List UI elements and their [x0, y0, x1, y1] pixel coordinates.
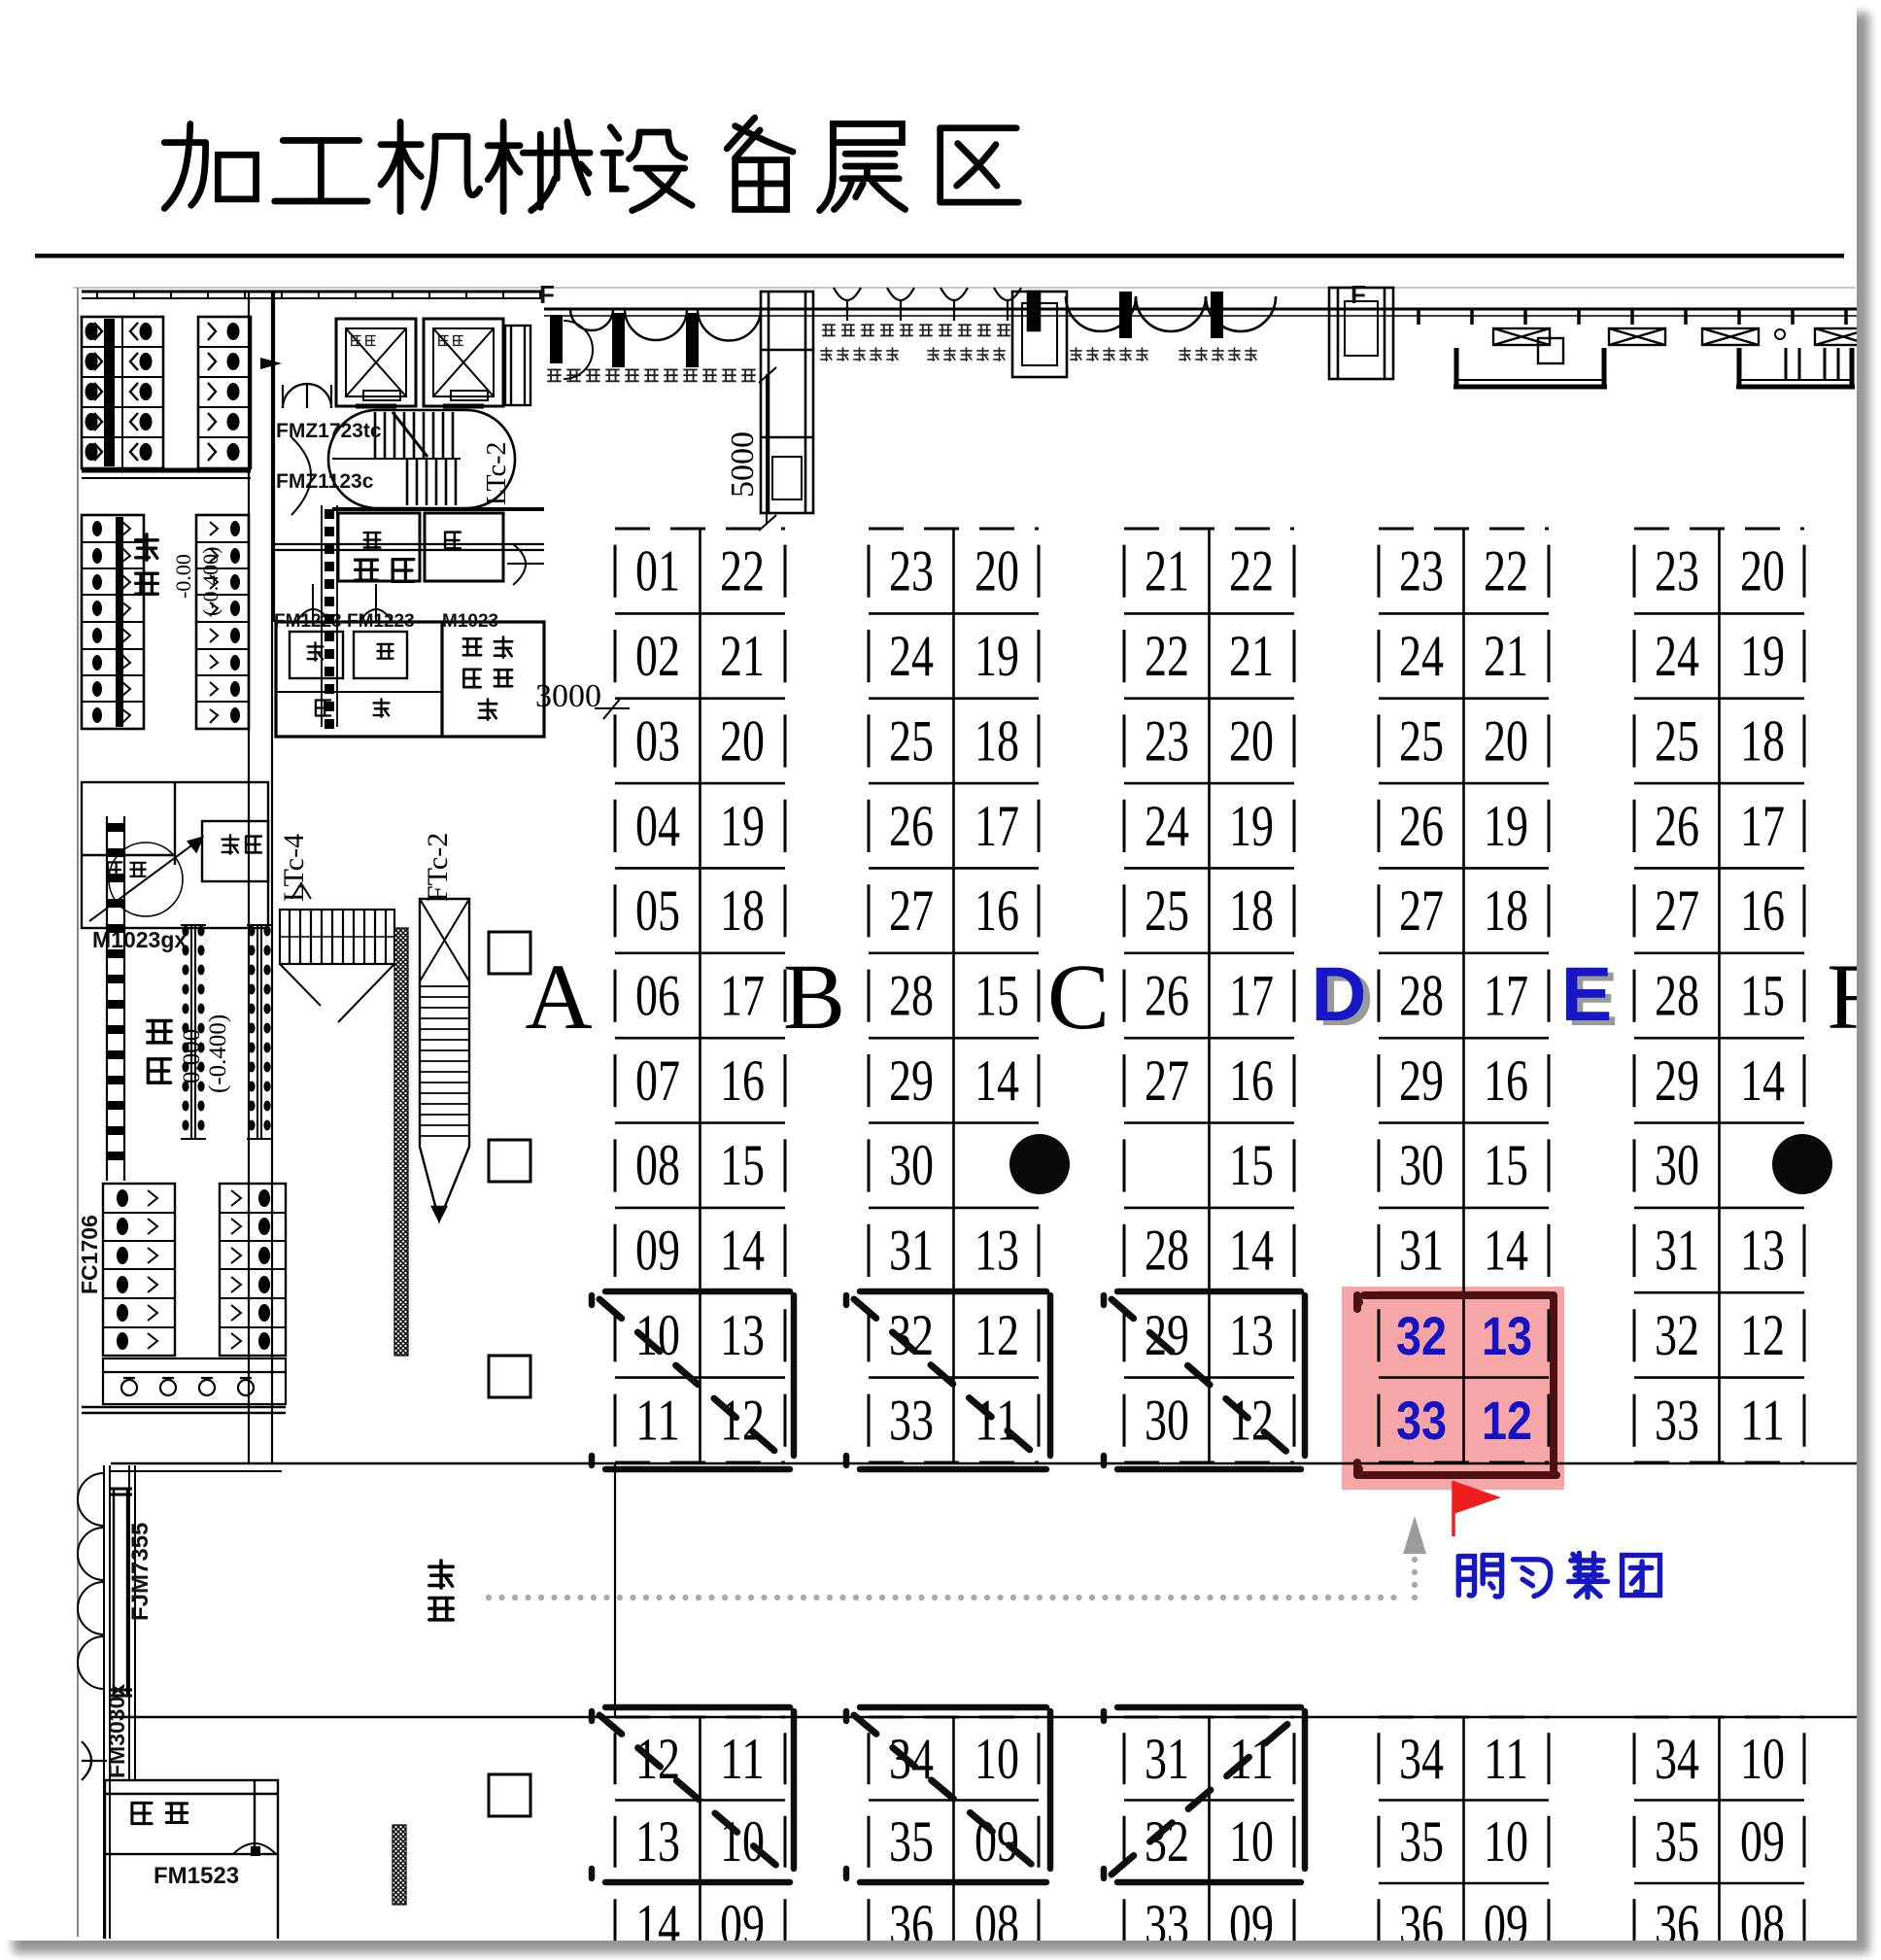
svg-text:27: 27	[889, 878, 934, 943]
svg-text:13: 13	[635, 1809, 680, 1874]
svg-text:26: 26	[1655, 794, 1699, 858]
svg-text:13: 13	[720, 1303, 765, 1367]
svg-text:08: 08	[975, 1893, 1019, 1957]
svg-text:18: 18	[1484, 878, 1528, 943]
svg-text:09: 09	[720, 1893, 765, 1957]
svg-text:21: 21	[1229, 624, 1274, 688]
svg-text:34: 34	[1655, 1727, 1699, 1791]
svg-text:19: 19	[720, 794, 765, 858]
svg-text:16: 16	[1740, 878, 1785, 943]
svg-text:01: 01	[635, 539, 680, 603]
svg-text:LTc-4: LTc-4	[278, 834, 310, 902]
svg-text:07: 07	[635, 1049, 680, 1113]
svg-text:11: 11	[635, 1388, 680, 1452]
svg-text:25: 25	[889, 708, 934, 773]
svg-text:14: 14	[975, 1049, 1019, 1113]
svg-text:26: 26	[1145, 964, 1189, 1028]
svg-text:(-0.400): (-0.400)	[198, 547, 222, 616]
svg-text:FM1523: FM1523	[154, 1863, 239, 1889]
svg-text:30: 30	[1655, 1133, 1699, 1197]
svg-text:20: 20	[1484, 708, 1528, 773]
svg-text:08: 08	[635, 1133, 680, 1197]
svg-text:32: 32	[1655, 1303, 1699, 1367]
svg-text:09: 09	[1229, 1893, 1274, 1957]
svg-text:13: 13	[1229, 1303, 1274, 1367]
svg-text:08: 08	[1740, 1893, 1785, 1957]
svg-text:10: 10	[1484, 1809, 1528, 1874]
svg-text:30: 30	[1145, 1388, 1189, 1452]
svg-text:5000: 5000	[725, 431, 761, 498]
svg-text:10: 10	[1740, 1727, 1785, 1791]
svg-text:FM1223 FM1223: FM1223 FM1223	[274, 611, 415, 632]
svg-text:24: 24	[889, 624, 934, 688]
svg-text:34: 34	[1399, 1727, 1444, 1791]
svg-text:25: 25	[1145, 878, 1189, 943]
svg-text:14: 14	[1484, 1219, 1528, 1283]
svg-text:31: 31	[889, 1219, 934, 1283]
svg-text:28: 28	[1655, 964, 1699, 1028]
svg-text:33: 33	[1655, 1388, 1699, 1452]
svg-text:13: 13	[1740, 1219, 1785, 1283]
svg-text:22: 22	[720, 539, 765, 603]
svg-text:36: 36	[1399, 1893, 1444, 1957]
svg-text:09: 09	[635, 1219, 680, 1283]
svg-text:C: C	[1047, 945, 1110, 1049]
svg-text:FC1706: FC1706	[77, 1215, 102, 1294]
svg-text:LTc-2: LTc-2	[482, 442, 512, 505]
svg-text:15: 15	[975, 964, 1019, 1028]
svg-text:29: 29	[1399, 1049, 1444, 1113]
svg-text:14: 14	[1229, 1219, 1274, 1283]
svg-text:20: 20	[1740, 539, 1785, 603]
svg-text:20: 20	[1229, 708, 1274, 773]
svg-text:11: 11	[975, 1388, 1019, 1452]
svg-text:35: 35	[1655, 1809, 1699, 1874]
svg-text:34: 34	[889, 1727, 934, 1791]
svg-text:15: 15	[1229, 1133, 1274, 1197]
svg-text:11: 11	[1740, 1388, 1785, 1452]
svg-text:11: 11	[1484, 1727, 1528, 1791]
svg-text:27: 27	[1145, 1049, 1189, 1113]
svg-text:20: 20	[720, 708, 765, 773]
svg-text:30: 30	[1399, 1133, 1444, 1197]
svg-text:F: F	[1351, 280, 1366, 309]
svg-text:22: 22	[1145, 624, 1189, 688]
svg-text:26: 26	[889, 794, 934, 858]
svg-text:16: 16	[1484, 1049, 1528, 1113]
svg-text:36: 36	[1655, 1893, 1699, 1957]
svg-text:29: 29	[889, 1049, 934, 1113]
svg-text:E: E	[1561, 950, 1613, 1037]
svg-text:F: F	[1827, 945, 1878, 1049]
svg-text:17: 17	[1740, 794, 1785, 858]
svg-text:10: 10	[1229, 1809, 1274, 1874]
svg-text:21: 21	[1484, 624, 1528, 688]
svg-text:33: 33	[1396, 1390, 1447, 1451]
svg-text:24: 24	[1655, 624, 1699, 688]
svg-text:0.000: 0.000	[179, 1029, 205, 1083]
svg-text:M1023: M1023	[442, 611, 498, 632]
svg-text:21: 21	[1145, 539, 1189, 603]
svg-text:23: 23	[889, 539, 934, 603]
svg-text:22: 22	[1484, 539, 1528, 603]
svg-text:(-0.400): (-0.400)	[205, 1014, 231, 1093]
svg-text:12: 12	[975, 1303, 1019, 1367]
svg-text:20: 20	[975, 539, 1019, 603]
svg-text:06: 06	[635, 964, 680, 1028]
svg-text:18: 18	[1740, 708, 1785, 773]
svg-text:16: 16	[975, 878, 1019, 943]
svg-text:11: 11	[720, 1727, 765, 1791]
svg-text:23: 23	[1399, 539, 1444, 603]
svg-text:15: 15	[720, 1133, 765, 1197]
svg-text:29: 29	[1655, 1049, 1699, 1113]
svg-text:FMZ1123c: FMZ1123c	[276, 470, 374, 493]
svg-text:16: 16	[1229, 1049, 1274, 1113]
svg-text:18: 18	[1229, 878, 1274, 943]
svg-text:02: 02	[635, 624, 680, 688]
svg-text:35: 35	[889, 1809, 934, 1874]
svg-text:26: 26	[1399, 794, 1444, 858]
svg-text:28: 28	[1145, 1219, 1189, 1283]
svg-text:F: F	[539, 280, 555, 309]
svg-text:31: 31	[1145, 1727, 1189, 1791]
svg-text:12: 12	[1482, 1390, 1532, 1451]
svg-text:35: 35	[1399, 1809, 1444, 1874]
svg-text:15: 15	[1740, 964, 1785, 1028]
svg-text:31: 31	[1399, 1219, 1444, 1283]
svg-text:FTc-2: FTc-2	[422, 833, 454, 902]
svg-text:23: 23	[1145, 708, 1189, 773]
svg-text:03: 03	[635, 708, 680, 773]
svg-text:16: 16	[720, 1049, 765, 1113]
svg-text:12: 12	[1229, 1388, 1274, 1452]
svg-text:22: 22	[1229, 539, 1274, 603]
svg-text:31: 31	[1655, 1219, 1699, 1283]
svg-text:-0.00: -0.00	[171, 554, 195, 599]
svg-text:19: 19	[1484, 794, 1528, 858]
svg-text:23: 23	[1655, 539, 1699, 603]
svg-text:24: 24	[1399, 624, 1444, 688]
svg-text:B: B	[783, 945, 845, 1049]
svg-text:19: 19	[975, 624, 1019, 688]
svg-text:19: 19	[1229, 794, 1274, 858]
svg-text:32: 32	[1396, 1305, 1447, 1366]
svg-text:FJM7355: FJM7355	[127, 1523, 154, 1621]
svg-text:17: 17	[1484, 964, 1528, 1028]
svg-text:30: 30	[889, 1133, 934, 1197]
svg-text:25: 25	[1655, 708, 1699, 773]
svg-text:04: 04	[635, 794, 680, 858]
svg-text:28: 28	[1399, 964, 1444, 1028]
svg-text:15: 15	[1484, 1133, 1528, 1197]
svg-text:18: 18	[975, 708, 1019, 773]
svg-text:19: 19	[1740, 624, 1785, 688]
svg-text:17: 17	[975, 794, 1019, 858]
svg-text:D: D	[1311, 950, 1366, 1037]
svg-text:27: 27	[1655, 878, 1699, 943]
svg-text:25: 25	[1399, 708, 1444, 773]
svg-text:24: 24	[1145, 794, 1189, 858]
svg-text:14: 14	[720, 1219, 765, 1283]
svg-text:33: 33	[1145, 1893, 1189, 1957]
svg-text:14: 14	[1740, 1049, 1785, 1113]
svg-text:12: 12	[720, 1388, 765, 1452]
svg-text:13: 13	[1482, 1305, 1532, 1366]
svg-text:33: 33	[889, 1388, 934, 1452]
svg-text:14: 14	[635, 1893, 680, 1957]
svg-text:05: 05	[635, 878, 680, 943]
svg-text:12: 12	[1740, 1303, 1785, 1367]
svg-text:18: 18	[720, 878, 765, 943]
svg-text:28: 28	[889, 964, 934, 1028]
svg-text:17: 17	[720, 964, 765, 1028]
svg-text:36: 36	[889, 1893, 934, 1957]
svg-text:21: 21	[720, 624, 765, 688]
svg-text:10: 10	[975, 1727, 1019, 1791]
svg-text:09: 09	[1740, 1809, 1785, 1874]
svg-text:13: 13	[975, 1219, 1019, 1283]
svg-text:27: 27	[1399, 878, 1444, 943]
svg-text:A: A	[525, 945, 592, 1049]
svg-text:17: 17	[1229, 964, 1274, 1028]
svg-text:09: 09	[1484, 1893, 1528, 1957]
svg-text:FM3030x: FM3030x	[104, 1684, 129, 1778]
